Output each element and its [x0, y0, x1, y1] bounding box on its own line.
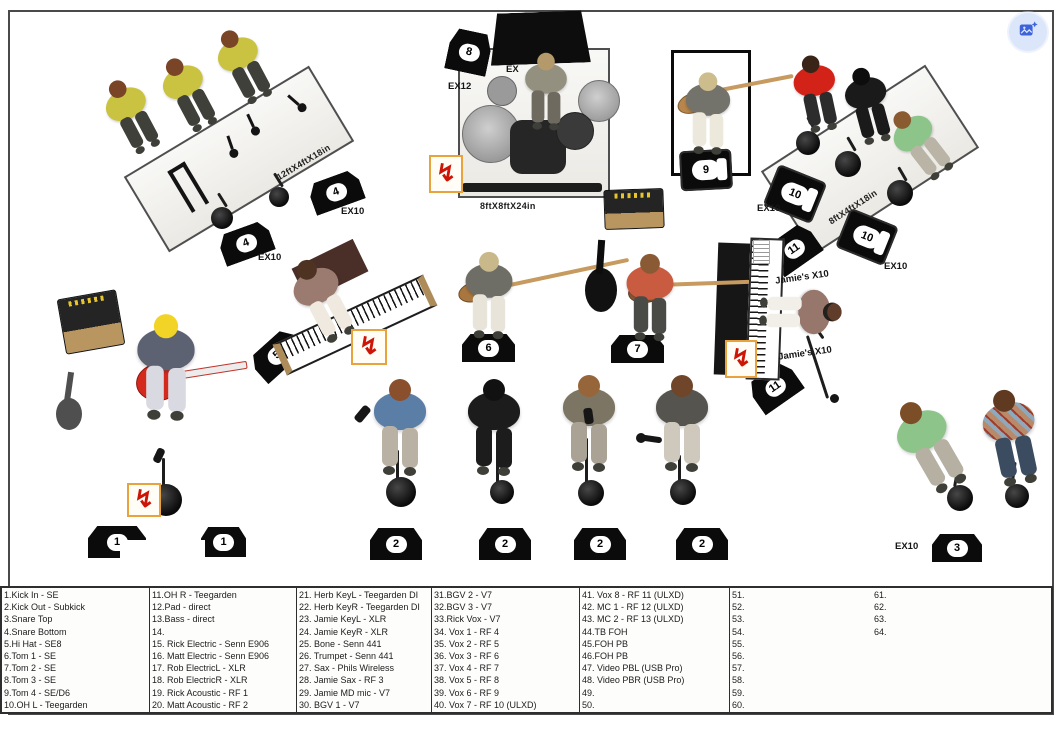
- mic-head: [636, 433, 646, 443]
- mic-stand: [162, 458, 165, 486]
- image-sparkle-icon: [1017, 19, 1039, 46]
- input-row: 29. Jamie MD mic - V7: [299, 687, 431, 699]
- sheet-music: [753, 240, 770, 264]
- ex-partial-label: EX: [506, 64, 519, 75]
- input-row: 8.Tom 3 - SE: [4, 674, 149, 686]
- input-row: 50.: [582, 699, 729, 711]
- monitor-wedge-2: 2: [370, 528, 422, 560]
- input-row: 4.Snare Bottom: [4, 626, 149, 638]
- input-row: 7.Tom 2 - SE: [4, 662, 149, 674]
- input-row: 55.: [732, 638, 872, 650]
- mic-base: [887, 180, 913, 206]
- input-row: 42. MC 1 - RF 12 (ULXD): [582, 601, 729, 613]
- input-row: 24. Jamie KeyR - XLR: [299, 626, 431, 638]
- ex10-label: EX10: [258, 252, 281, 263]
- input-row: 23. Jamie KeyL - XLR: [299, 613, 431, 625]
- guitar-amp: [603, 188, 664, 230]
- ex10-label: EX10: [341, 206, 364, 217]
- image-edit-button[interactable]: [1009, 13, 1047, 51]
- input-row: 62.: [874, 601, 1051, 613]
- input-row: 13.Bass - direct: [152, 613, 296, 625]
- mic-base: [386, 477, 416, 507]
- input-row: 39. Vox 6 - RF 9: [434, 687, 579, 699]
- input-row: 9.Tom 4 - SE/D6: [4, 687, 149, 699]
- input-row: 54.: [732, 626, 872, 638]
- input-row: 11.OH R - Teegarden: [152, 589, 296, 601]
- input-row: 40. Vox 7 - RF 10 (ULXD): [434, 699, 579, 711]
- drum-riser-label: 8ftX8ftX24in: [480, 201, 536, 211]
- input-list-column: 21. Herb KeyL - Teegarden DI22. Herb Key…: [297, 588, 432, 712]
- mic-base: [835, 151, 861, 177]
- ex10-label: EX10: [757, 203, 780, 214]
- input-row: 20. Matt Acoustic - RF 2: [152, 699, 296, 711]
- stage-plot-canvas: 12ftX4ftX18in 4 EX10 4 EX10 8 EX12 EX 8f…: [0, 0, 1060, 750]
- input-list-column: 51.52.53.54.55.56.57.58.59.60.: [730, 588, 872, 712]
- mic-base: [269, 187, 289, 207]
- monitor-wedge-1: 1: [201, 527, 246, 557]
- input-row: 14.: [152, 626, 296, 638]
- front-guitarist-blonde: [135, 313, 197, 423]
- trumpet-icon: [228, 148, 239, 159]
- input-row: 43. MC 2 - RF 13 (ULXD): [582, 613, 729, 625]
- input-row: 12.Pad - direct: [152, 601, 296, 613]
- tom-drum: [487, 76, 517, 106]
- power-drop-icon: ↯: [725, 340, 757, 378]
- monitor-wedge-3: 3: [932, 534, 982, 562]
- monitor-wedge-2: 2: [479, 528, 531, 560]
- mic-head: [830, 394, 839, 403]
- input-row: 59.: [732, 687, 872, 699]
- input-row: 25. Bone - Senn 441: [299, 638, 431, 650]
- input-row: 51.: [732, 589, 872, 601]
- input-row: 41. Vox 8 - RF 11 (ULXD): [582, 589, 729, 601]
- input-row: 57.: [732, 662, 872, 674]
- monitor-wedge-2: 2: [676, 528, 728, 560]
- input-list-column: 61.62.63.64.: [872, 588, 1051, 712]
- singer-grey-shirt: [654, 374, 710, 474]
- input-row: 48. Video PBR (USB Pro): [582, 674, 729, 686]
- input-row: 64.: [874, 626, 1051, 638]
- input-row: 34. Vox 1 - RF 4: [434, 626, 579, 638]
- trumpet-icon: [249, 125, 261, 137]
- piano-player: [758, 288, 843, 336]
- input-row: 37. Vox 4 - RF 7: [434, 662, 579, 674]
- input-row: 28. Jamie Sax - RF 3: [299, 674, 431, 686]
- guitarist-red: [625, 253, 675, 343]
- input-row: 63.: [874, 613, 1051, 625]
- input-row: 18. Rob ElectricR - XLR: [152, 674, 296, 686]
- mic-base: [578, 480, 604, 506]
- input-row: 52.: [732, 601, 872, 613]
- power-drop-icon: ↯: [127, 483, 161, 517]
- input-list-column: 11.OH R - Teegarden12.Pad - direct13.Bas…: [150, 588, 297, 712]
- drummer: [524, 52, 569, 132]
- input-row: 38. Vox 5 - RF 8: [434, 674, 579, 686]
- input-row: 60.: [732, 699, 872, 711]
- white-patch: [120, 540, 205, 568]
- input-row: 2.Kick Out - Subkick: [4, 601, 149, 613]
- input-row: 3.Snare Top: [4, 613, 149, 625]
- input-row: 36. Vox 3 - RF 6: [434, 650, 579, 662]
- input-row: 16. Matt Electric - Senn E906: [152, 650, 296, 662]
- input-row: 56.: [732, 650, 872, 662]
- input-row: 46.FOH PB: [582, 650, 729, 662]
- input-row: 53.: [732, 613, 872, 625]
- drum-hardware-bar: [462, 183, 602, 192]
- guitar-stand-silhouette: [56, 398, 82, 430]
- bass-player: [684, 72, 732, 157]
- mic-base: [670, 479, 696, 505]
- sax-icon: [296, 101, 309, 114]
- monitor-wedge-2: 2: [574, 528, 626, 560]
- input-row: 32.BGV 3 - V7: [434, 601, 579, 613]
- input-row: 22. Herb KeyR - Teegarden DI: [299, 601, 431, 613]
- input-row: 5.Hi Hat - SE8: [4, 638, 149, 650]
- input-row: 15. Rick Electric - Senn E906: [152, 638, 296, 650]
- input-row: 44.TB FOH: [582, 626, 729, 638]
- power-drop-icon: ↯: [351, 329, 387, 365]
- input-row: 26. Trumpet - Senn 441: [299, 650, 431, 662]
- input-row: 10.OH L - Teegarden: [4, 699, 149, 711]
- input-list-column: 1.Kick In - SE2.Kick Out - Subkick3.Snar…: [2, 588, 150, 712]
- input-row: 27. Sax - Phils Wireless: [299, 662, 431, 674]
- input-row: 17. Rob ElectricL - XLR: [152, 662, 296, 674]
- input-row: 49.: [582, 687, 729, 699]
- mic-base: [490, 480, 514, 504]
- power-drop-icon: ↯: [429, 155, 463, 193]
- input-row: 58.: [732, 674, 872, 686]
- input-row: 61.: [874, 589, 1051, 601]
- guitar-amp: [57, 289, 126, 355]
- input-list-table: 1.Kick In - SE2.Kick Out - Subkick3.Snar…: [0, 586, 1053, 714]
- trombone-icon: [167, 161, 209, 212]
- input-row: 45.FOH PB: [582, 638, 729, 650]
- input-row: 19. Rick Acoustic - RF 1: [152, 687, 296, 699]
- input-row: 6.Tom 1 - SE: [4, 650, 149, 662]
- lead-singer-blue: [372, 378, 428, 478]
- input-row: 33.Rick Vox - V7: [434, 613, 579, 625]
- input-row: 30. BGV 1 - V7: [299, 699, 431, 711]
- ex10-label: EX10: [895, 541, 918, 552]
- singer-black-dress: [466, 378, 522, 478]
- input-list-column: 31.BGV 2 - V732.BGV 3 - V733.Rick Vox - …: [432, 588, 580, 712]
- input-row: 1.Kick In - SE: [4, 589, 149, 601]
- input-row: 47. Video PBL (USB Pro): [582, 662, 729, 674]
- input-row: 21. Herb KeyL - Teegarden DI: [299, 589, 431, 601]
- ex10-label: EX10: [884, 261, 907, 272]
- input-list-column: 41. Vox 8 - RF 11 (ULXD)42. MC 1 - RF 12…: [580, 588, 730, 712]
- input-row: 35. Vox 2 - RF 5: [434, 638, 579, 650]
- guitarist-grey: [464, 251, 514, 341]
- input-row: 31.BGV 2 - V7: [434, 589, 579, 601]
- mic-base: [211, 207, 233, 229]
- acoustic-guitar-silhouette: [585, 268, 617, 312]
- ex12-label: EX12: [448, 81, 471, 92]
